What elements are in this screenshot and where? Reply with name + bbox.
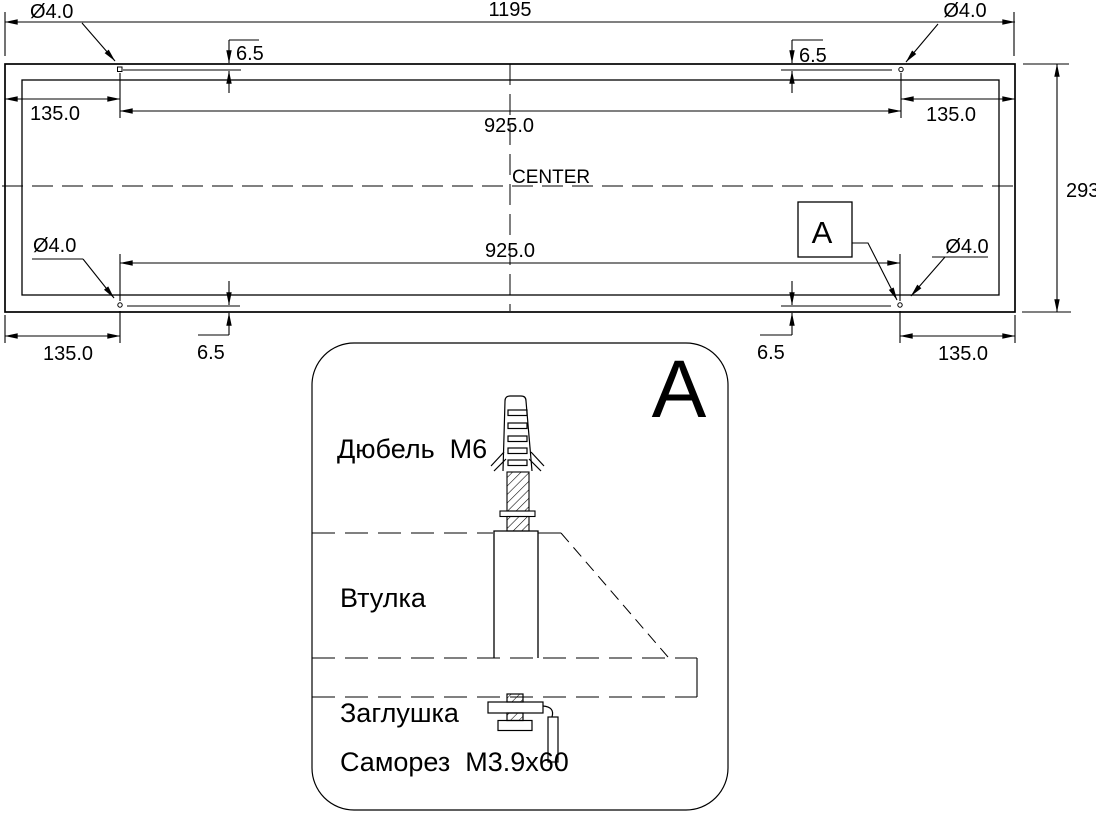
hole-top-right <box>899 67 903 71</box>
dim-vertical-offset-bottom-right <box>760 281 891 335</box>
dim-overall-height-label: 293 <box>1066 180 1096 202</box>
edge-offset-label-bottom-right: 135.0 <box>938 343 988 365</box>
leader-hole-bottom-left <box>32 259 114 298</box>
vertical-offset-label-bottom-left: 6.5 <box>197 342 225 364</box>
technical-drawing: 1195 293 CENTER Ø4.0 Ø4.0 Ø4.0 Ø4.0 925.… <box>0 0 1096 813</box>
detail-callout-leader <box>852 243 897 300</box>
hole-diameter-label-bottom-left: Ø4.0 <box>33 235 76 257</box>
dim-vertical-offset-bottom-left <box>127 281 240 335</box>
hole-diameter-label-top-right: Ø4.0 <box>943 0 986 22</box>
dim-edge-offset-bottom-right <box>900 311 1015 343</box>
dim-edge-offset-bottom-left <box>5 311 120 343</box>
hole-bottom-left <box>118 303 122 307</box>
technical-drawing-page: 1195 293 CENTER Ø4.0 Ø4.0 Ø4.0 Ø4.0 925.… <box>0 0 1096 813</box>
countersink-diagonal <box>561 533 668 657</box>
part-label-sleeve: Втулка <box>340 583 427 613</box>
part-label-dowel: Дюбель M6 <box>337 434 487 464</box>
leader-hole-top-right <box>906 24 938 62</box>
leader-hole-top-left <box>82 23 115 61</box>
hole-bottom-right <box>898 303 902 307</box>
hole-spacing-label-bottom: 925.0 <box>485 240 535 262</box>
hole-top-left <box>118 67 123 72</box>
sleeve-graphic <box>494 531 538 658</box>
part-label-screw: Саморез M3.9x60 <box>340 747 569 777</box>
vertical-offset-label-bottom-right: 6.5 <box>757 342 785 364</box>
vertical-offset-label-top-right: 6.5 <box>799 45 827 67</box>
vertical-offset-label-top-left: 6.5 <box>236 43 264 65</box>
dim-vertical-offset-top-right <box>781 40 892 93</box>
part-label-plug: Заглушка <box>340 698 460 728</box>
edge-offset-label-top-right: 135.0 <box>926 104 976 126</box>
hole-diameter-label-top-left: Ø4.0 <box>30 1 73 23</box>
centerline-label: CENTER <box>512 167 590 188</box>
panel-section-graphic <box>312 658 697 697</box>
edge-offset-label-bottom-left: 135.0 <box>43 343 93 365</box>
detail-title: A <box>652 344 707 435</box>
hole-spacing-label-top: 925.0 <box>484 115 534 137</box>
plug-graphic <box>488 694 543 731</box>
leader-hole-bottom-right <box>911 257 988 296</box>
dim-overall-height-graphics <box>1022 64 1071 312</box>
dim-overall-width-label: 1195 <box>488 0 531 21</box>
screw-shank-graphic <box>500 472 535 531</box>
dowel-graphic <box>491 396 544 471</box>
detail-callout-label: A <box>812 215 833 250</box>
edge-offset-label-top-left: 135.0 <box>30 103 80 125</box>
hole-diameter-label-bottom-right: Ø4.0 <box>945 236 988 258</box>
